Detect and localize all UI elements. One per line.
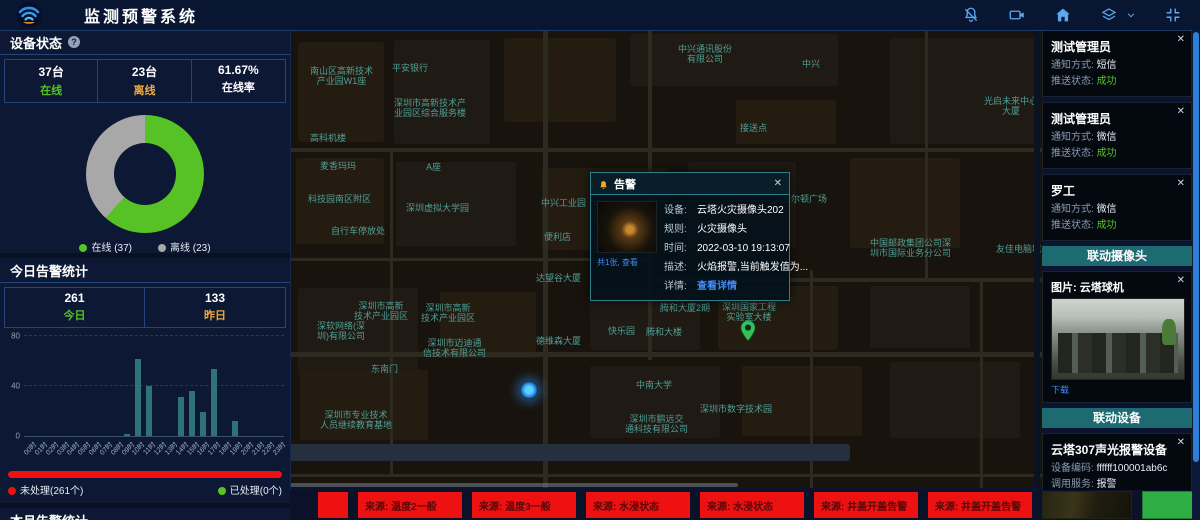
- card-close-icon[interactable]: ✕: [1177, 438, 1185, 448]
- video-camera-icon[interactable]: [1008, 6, 1026, 24]
- card-title: 罗工: [1051, 182, 1183, 199]
- linked-device-cards: 云塔307声光报警设备✕设备编码: ffffff100001ab6c调用服务: …: [1042, 433, 1192, 490]
- y-axis-tick: 80: [6, 332, 20, 341]
- popup-row: 规则:火灾摄像头: [664, 220, 808, 239]
- map-place-label: 深圳市数字技术园: [700, 404, 772, 414]
- map-place-label: 南山区高新技术 产业园W1座: [310, 66, 373, 86]
- stat-label: 昨日: [145, 307, 285, 323]
- map-building: [298, 42, 384, 142]
- map-place-label: 深圳市鹏远交 通科技有限公司: [625, 414, 688, 434]
- card-row-value: 成功: [1097, 148, 1117, 159]
- legend-label: 在线 (37): [91, 243, 132, 254]
- map-place-label: 中兴: [802, 59, 820, 69]
- app-logo-icon: [16, 2, 42, 28]
- popup-row-value: 云塔火灾摄像头202: [697, 201, 784, 220]
- popup-row: 设备:云塔火灾摄像头202: [664, 201, 808, 220]
- bar-14时[interactable]: [178, 397, 184, 436]
- map-road: [980, 280, 983, 488]
- card-row: 调用服务: 报警: [1051, 477, 1183, 490]
- bottom-alert-tile[interactable]: 来源: 水浸状态: [586, 492, 690, 518]
- map-place-label: 深软网络(深 圳)有限公司: [317, 321, 365, 341]
- device-status-stats: 37台在线23台离线61.67%在线率: [4, 59, 286, 103]
- stat-cell: 23台离线: [98, 60, 191, 102]
- legend-item: 离线 (23): [158, 239, 211, 253]
- today-alarm-header: 今日告警统计: [0, 253, 290, 283]
- card-row-label: 推送状态:: [1051, 148, 1097, 159]
- home-icon[interactable]: [1054, 6, 1072, 24]
- card-row-value: 成功: [1097, 220, 1117, 231]
- popup-row-label: 规则:: [664, 220, 697, 239]
- card-close-icon[interactable]: ✕: [1177, 179, 1185, 189]
- map-place-label: 深圳虚拟大学园: [406, 203, 469, 213]
- bell-off-icon[interactable]: [962, 6, 980, 24]
- map-road: [290, 148, 1042, 152]
- card-row: 通知方式: 微信: [1051, 202, 1183, 218]
- map-place-label: 科技园南区附区: [308, 194, 371, 204]
- bar-10时[interactable]: [135, 359, 141, 437]
- popup-row-value: 火焰报警,当前触发值为...: [697, 258, 808, 277]
- alarm-popup-titlebar: 告警 ✕: [591, 173, 789, 195]
- card-row-label: 调用服务:: [1051, 479, 1097, 490]
- device-status-donut-wrap: [0, 115, 290, 233]
- popup-row-value: 2022-03-10 19:13:07: [697, 239, 790, 258]
- notification-card: 测试管理员✕通知方式: 微信推送状态: 成功: [1042, 102, 1192, 169]
- stat-value: 61.67%: [192, 63, 285, 77]
- map-place-label: 麦香玛玛: [320, 161, 356, 171]
- map-place-label: 深圳市迈迪通 信技术有限公司: [423, 338, 486, 358]
- card-row-label: 推送状态:: [1051, 220, 1097, 231]
- popup-row: 描述:火焰报警,当前触发值为...: [664, 258, 808, 277]
- bottom-alert-bar: 来源: 温度2一般来源: 温度3一般来源: 水浸状态来源: 水浸状态来源: 井盖…: [290, 490, 1200, 520]
- map-building: [890, 362, 1020, 438]
- map-place-label: 接送点: [740, 123, 767, 133]
- alarm-popup-title: 告警: [614, 176, 769, 192]
- card-title: 测试管理员: [1051, 110, 1183, 127]
- stat-cell: 261今日: [5, 288, 145, 327]
- map-place-label: 自行车停放处: [331, 226, 385, 236]
- map-building: [736, 100, 836, 144]
- device-status-title: 设备状态: [10, 33, 62, 52]
- popup-row-value: 火灾摄像头: [697, 220, 747, 239]
- map-place-label: 中国邮政集团公司深 圳市国际业务分公司: [870, 238, 951, 258]
- map-place-label: 中兴工业园: [541, 198, 586, 208]
- card-close-icon[interactable]: ✕: [1177, 276, 1185, 286]
- card-row-value: 微信: [1097, 132, 1117, 143]
- right-panel: 测试管理员✕通知方式: 短信推送状态: 成功测试管理员✕通知方式: 微信推送状态…: [1042, 30, 1192, 490]
- map-place-label: 深圳国家工程 实验室大楼: [722, 302, 776, 322]
- card-row-value: ffffff100001ab6c: [1097, 463, 1168, 474]
- bar-17时[interactable]: [211, 369, 217, 437]
- map-place-label: 平安银行: [392, 63, 428, 73]
- card-row: 通知方式: 短信: [1051, 58, 1183, 74]
- bar-11时[interactable]: [146, 386, 152, 436]
- map-horizontal-scrollbar[interactable]: [290, 483, 738, 487]
- bottom-alert-tile[interactable]: [318, 492, 348, 518]
- notification-card: 云塔307声光报警设备✕设备编码: ffffff100001ab6c调用服务: …: [1042, 433, 1192, 490]
- bar-09时[interactable]: [124, 434, 130, 437]
- device-status-header: 设备状态 ?: [0, 30, 290, 55]
- map-place-label: 东南门: [371, 364, 398, 374]
- card-row-value: 短信: [1097, 60, 1117, 71]
- card-row: 推送状态: 成功: [1051, 146, 1183, 162]
- bottom-alert-tile[interactable]: 来源: 水浸状态: [700, 492, 804, 518]
- y-axis-tick: 0: [6, 432, 20, 441]
- card-row-value: 微信: [1097, 204, 1117, 215]
- card-close-icon[interactable]: ✕: [1177, 35, 1185, 45]
- linked-devices-banner-button[interactable]: 联动设备: [1042, 408, 1192, 428]
- bottom-alert-tile[interactable]: 来源: 温度2一般: [358, 492, 462, 518]
- map-place-label: 深圳市高新技术产 业园区综合服务楼: [394, 98, 466, 118]
- popup-row-label: 时间:: [664, 239, 697, 258]
- alarm-thumb-col: 共1张, 查看: [597, 201, 657, 296]
- alarm-snapshot-image[interactable]: [597, 201, 657, 253]
- bottom-alert-tile[interactable]: 来源: 温度3一般: [472, 492, 576, 518]
- notification-card: 测试管理员✕通知方式: 短信推送状态: 成功: [1042, 30, 1192, 97]
- fullscreen-exit-icon[interactable]: [1164, 6, 1182, 24]
- stat-value: 261: [5, 291, 144, 305]
- bar-16时[interactable]: [200, 412, 206, 436]
- today-alarm-title: 今日告警统计: [10, 261, 88, 280]
- blue-alert-marker[interactable]: [520, 381, 538, 399]
- header: 监测预警系统: [0, 0, 1200, 31]
- card-title: 测试管理员: [1051, 38, 1183, 55]
- camera-image-card: 图片: 云塔球机 ✕ 下载: [1042, 271, 1192, 403]
- alarm-popup-body: 共1张, 查看 设备:云塔火灾摄像头202规则:火灾摄像头时间:2022-03-…: [591, 195, 789, 296]
- chart-gridline: [24, 385, 284, 386]
- map-building: [890, 38, 1036, 144]
- alarm-bell-icon: [598, 178, 609, 189]
- legend-dot-icon: [158, 244, 166, 252]
- stat-cell: 37台在线: [5, 60, 98, 102]
- popup-row: 详情:查看详情: [664, 277, 808, 296]
- stat-cell: 61.67%在线率: [192, 60, 285, 102]
- map-building: [870, 286, 970, 348]
- map-place-label: 深圳市高新 技术产业园区: [354, 301, 408, 321]
- layers-icon[interactable]: [1100, 6, 1118, 24]
- popup-row: 时间:2022-03-10 19:13:07: [664, 239, 808, 258]
- popup-row-label: 详情:: [664, 277, 697, 296]
- bottom-alert-tile[interactable]: 来源: 井盖开盖告警: [928, 492, 1032, 518]
- app-root: 监测预警系统 设备状态 ? 37: [0, 0, 1200, 520]
- page-scrollbar-thumb[interactable]: [1193, 32, 1199, 462]
- map-road: [543, 30, 548, 488]
- card-close-icon[interactable]: ✕: [1177, 107, 1185, 117]
- map-building: [394, 40, 490, 144]
- stat-value: 37台: [5, 63, 97, 80]
- bottom-camera-thumbnail[interactable]: [1042, 491, 1132, 519]
- map-building: [850, 158, 960, 248]
- map-place-label: 便利店: [544, 232, 571, 242]
- donut-legend: 在线 (37)离线 (23): [0, 239, 290, 253]
- hourly-alarm-bar-chart: 04080: [24, 336, 284, 437]
- bar-19时[interactable]: [232, 421, 238, 436]
- map-place-label: 高科机楼: [310, 133, 346, 143]
- map-place-label: 深圳市专业技术 人员继续教育基地: [320, 410, 392, 430]
- map-road: [290, 474, 1042, 477]
- popup-row-label: 描述:: [664, 258, 697, 277]
- map-place-label: 光启未来中心大厦: [980, 96, 1042, 116]
- right-panel-scrolltrack[interactable]: [1034, 30, 1040, 488]
- linked-camera-banner-button[interactable]: 联动摄像头: [1042, 246, 1192, 266]
- card-row: 设备编码: ffffff100001ab6c: [1051, 461, 1183, 477]
- card-row-value: 报警: [1097, 479, 1117, 490]
- alarm-progress-legend: 未处理(261个) 已处理(0个): [0, 478, 290, 498]
- card-row-label: 推送状态:: [1051, 76, 1097, 87]
- card-row-label: 通知方式:: [1051, 204, 1097, 215]
- left-panel: 设备状态 ? 37台在线23台离线61.67%在线率 在线 (37)离线 (23…: [0, 30, 291, 520]
- notification-cards: 测试管理员✕通知方式: 短信推送状态: 成功测试管理员✕通知方式: 微信推送状态…: [1042, 30, 1192, 241]
- handled-legend: 已处理(0个): [218, 482, 282, 498]
- card-row-label: 通知方式:: [1051, 60, 1097, 71]
- alarm-popup: 告警 ✕ 共1张, 查看 设备:云塔火灾摄像头202规则:火灾摄像头时间:202…: [590, 172, 790, 301]
- camera-image-title: 图片: 云塔球机: [1051, 279, 1183, 295]
- stat-cell: 133昨日: [145, 288, 285, 327]
- page-title: 监测预警系统: [84, 3, 198, 27]
- alarm-detail-rows: 设备:云塔火灾摄像头202规则:火灾摄像头时间:2022-03-10 19:13…: [664, 201, 808, 296]
- page-scrollbar[interactable]: [1192, 30, 1200, 520]
- legend-label: 离线 (23): [170, 243, 211, 254]
- alarm-progress-fill: [8, 471, 282, 478]
- stat-value: 133: [145, 291, 285, 305]
- stat-label: 在线: [5, 82, 97, 98]
- map-place-label: 达望谷大厦: [536, 273, 581, 283]
- help-icon[interactable]: ?: [68, 36, 80, 48]
- notification-card: 罗工✕通知方式: 微信推送状态: 成功: [1042, 174, 1192, 241]
- device-status-donut-chart: [86, 115, 204, 233]
- month-alarm-header: 本月告警统计: [0, 503, 290, 520]
- bottom-alert-tile[interactable]: 来源: 井盖开盖告警: [814, 492, 918, 518]
- map-place-label: 德维森大厦: [536, 336, 581, 346]
- popup-row-label: 设备:: [664, 201, 697, 220]
- map-canvas[interactable]: 南山区高新技术 产业园W1座平安银行深圳市高新技术产 业园区综合服务楼高科机楼麦…: [290, 30, 1042, 488]
- map-wide-road: [290, 444, 850, 461]
- map-place-label: 快乐园: [608, 326, 635, 336]
- stat-label: 在线率: [192, 79, 285, 95]
- bar-15时[interactable]: [189, 391, 195, 436]
- card-title: 云塔307声光报警设备: [1051, 441, 1183, 458]
- map-place-label: 中南大学: [636, 380, 672, 390]
- header-actions: [962, 6, 1182, 24]
- popup-close-icon[interactable]: ✕: [774, 179, 782, 189]
- map-building: [742, 366, 862, 436]
- view-details-link[interactable]: 查看详情: [697, 277, 737, 296]
- legend-item: 在线 (37): [79, 239, 132, 253]
- bar-chart-x-labels: 00时01时02时03时04时05时06时07时08时09时10时11时12时1…: [24, 439, 284, 465]
- card-row: 推送状态: 成功: [1051, 218, 1183, 234]
- card-row: 通知方式: 微信: [1051, 130, 1183, 146]
- unhandled-legend: 未处理(261个): [8, 482, 83, 498]
- map-building: [504, 38, 616, 122]
- map-place-label: 腾和大厦2期: [660, 303, 710, 313]
- chevron-down-icon[interactable]: [1126, 10, 1136, 20]
- map-place-label: 腾和大楼: [646, 327, 682, 337]
- y-axis-tick: 40: [6, 382, 20, 391]
- stat-label: 离线: [98, 82, 190, 98]
- today-alarm-stats: 261今日133昨日: [4, 287, 286, 328]
- card-row-label: 通知方式:: [1051, 132, 1097, 143]
- stat-label: 今日: [5, 307, 144, 323]
- card-row-label: 设备编码:: [1051, 463, 1097, 474]
- download-link[interactable]: 下载: [1051, 383, 1183, 396]
- stat-value: 23台: [98, 63, 190, 80]
- card-row-value: 成功: [1097, 76, 1117, 87]
- camera-snapshot-image[interactable]: [1051, 298, 1185, 380]
- legend-dot-icon: [79, 244, 87, 252]
- alarm-snapshot-caption[interactable]: 共1张, 查看: [597, 257, 657, 268]
- map-place-label: A座: [426, 162, 441, 172]
- chart-gridline: [24, 335, 284, 336]
- month-alarm-title: 本月告警统计: [10, 511, 88, 520]
- map-place-label: 中兴通讯股份 有限公司: [678, 44, 732, 64]
- map-place-label: 深圳市高新 技术产业园区: [421, 303, 475, 323]
- green-location-pin[interactable]: [740, 320, 756, 342]
- map-road: [290, 352, 1042, 357]
- card-row: 推送状态: 成功: [1051, 74, 1183, 90]
- alarm-progress-bar: [8, 471, 282, 478]
